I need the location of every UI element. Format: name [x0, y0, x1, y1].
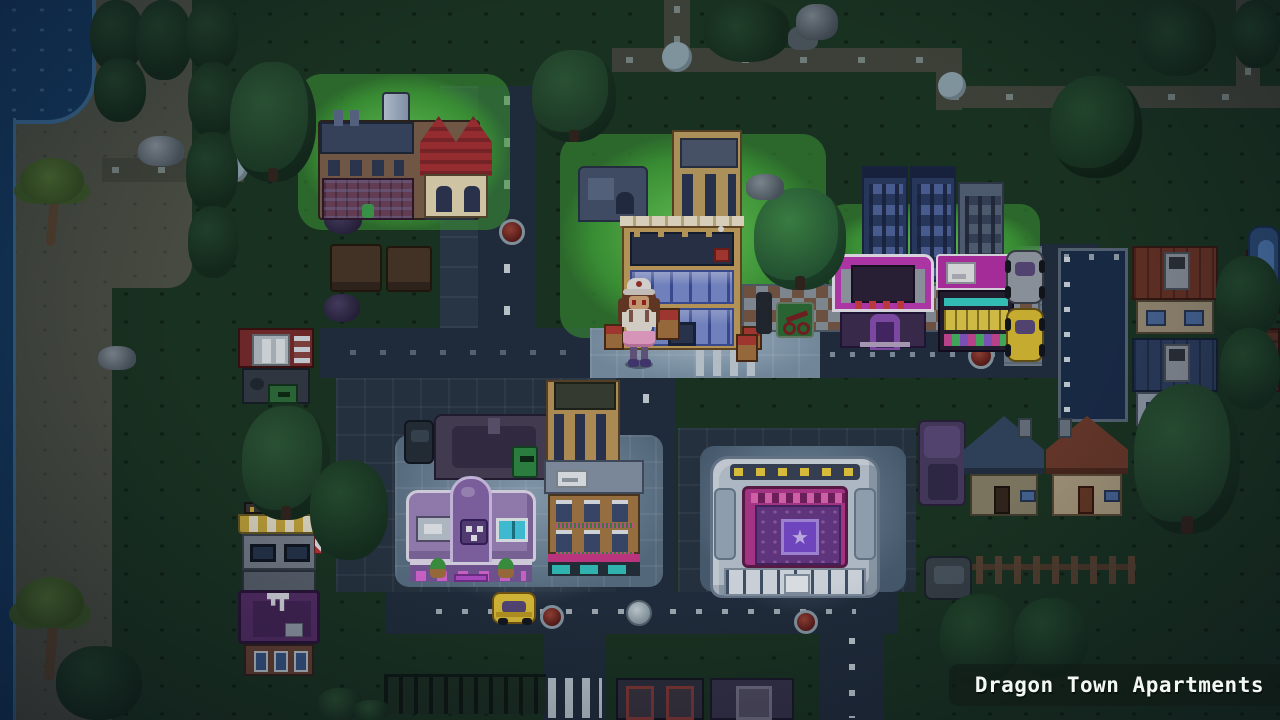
ocean-water	[0, 0, 96, 124]
house-base	[1052, 474, 1122, 516]
dice-pip	[471, 535, 477, 541]
tower-window-columns	[554, 414, 616, 462]
sign-card	[556, 470, 588, 488]
gc-steps	[454, 574, 488, 582]
tree	[1138, 0, 1216, 76]
bike-wheel-icon	[783, 322, 796, 335]
window	[464, 186, 480, 212]
magenta-shop-mart[interactable]	[936, 254, 1016, 352]
hat-badge	[636, 281, 642, 287]
window	[250, 544, 276, 562]
gc-tower	[450, 476, 492, 570]
player-arm	[622, 312, 628, 327]
stadium-wing	[714, 488, 736, 560]
strap	[629, 310, 633, 322]
door	[666, 686, 694, 720]
palm-tree	[16, 578, 86, 682]
window-row	[556, 534, 634, 552]
house-base	[970, 474, 1038, 516]
stadium-lights	[734, 468, 856, 476]
arcade-base	[840, 312, 926, 348]
yellow-shelf	[944, 310, 1008, 330]
wheel	[522, 618, 532, 625]
annex-vent	[488, 418, 500, 434]
roof-card	[285, 623, 303, 637]
gc-cyan-sign	[496, 518, 528, 542]
tile-dots	[1064, 257, 1070, 419]
stadium-wing	[854, 488, 876, 560]
tan-tower-hotel-back[interactable]	[546, 380, 620, 464]
pillar	[915, 269, 925, 303]
cyan-strip	[944, 298, 1008, 306]
window	[1146, 310, 1166, 326]
sign-dash	[562, 478, 578, 482]
wheel	[1039, 260, 1045, 273]
cyan-windows	[552, 565, 636, 574]
house-gabled-blue[interactable]	[964, 416, 1044, 516]
shop-roof	[238, 328, 314, 368]
wheel	[1005, 260, 1011, 273]
tree-trunk	[795, 276, 805, 290]
wheel	[498, 618, 508, 625]
car-dark	[924, 556, 972, 600]
purple-roof	[238, 590, 320, 644]
zigzag-red-roof	[420, 116, 492, 176]
palm-fronds	[16, 578, 84, 628]
gc-window-left	[416, 516, 452, 542]
window	[1020, 490, 1036, 502]
manhole-red	[794, 610, 818, 634]
hotel-shopfront	[548, 562, 640, 576]
wheel	[1039, 344, 1045, 357]
wheel	[1005, 344, 1011, 357]
rock	[746, 174, 784, 200]
bumper-stripe	[496, 612, 532, 617]
pillar	[841, 269, 851, 303]
player-arm	[650, 312, 656, 327]
tree	[1216, 256, 1280, 338]
store-sign-band	[630, 232, 734, 266]
stage-dot-row	[751, 493, 845, 503]
house-gabled-brown[interactable]	[1046, 416, 1128, 516]
car-yellow	[1006, 308, 1044, 362]
tree	[230, 62, 316, 182]
tree-trunk	[1181, 516, 1193, 534]
roof-panel	[252, 334, 290, 366]
road-south-vertical-1	[544, 634, 606, 720]
player-shoe	[628, 359, 639, 367]
red-roof-shop-dark[interactable]	[238, 328, 314, 404]
window	[274, 651, 288, 672]
dumpster-green	[512, 446, 538, 478]
tree	[1220, 328, 1280, 410]
wheel	[1005, 286, 1011, 299]
location-label: Dragon Town Apartments	[949, 664, 1280, 706]
window	[1104, 490, 1120, 502]
arch-door	[616, 192, 634, 214]
red-dot-row	[855, 301, 911, 309]
door	[1078, 486, 1094, 514]
factory-stack-small	[350, 110, 359, 126]
mart-top	[936, 254, 1016, 290]
bottom-building-red-doors	[616, 678, 704, 720]
shine	[461, 487, 475, 497]
hotel-sign-band	[544, 460, 644, 494]
stage-screen: ★	[781, 519, 819, 555]
rock	[98, 346, 136, 370]
kiosk-top	[924, 426, 960, 458]
sign-red-box	[714, 248, 730, 262]
taxi-yellow	[492, 592, 536, 624]
shop-base	[242, 570, 316, 592]
road-dashes	[849, 638, 855, 718]
tree	[1232, 0, 1280, 68]
chimney	[1164, 344, 1190, 382]
tower-roofband	[912, 168, 954, 178]
dice-pip	[466, 526, 472, 532]
chimney-top	[1169, 349, 1185, 361]
stadium-entrance	[784, 574, 810, 594]
goods-row	[944, 334, 1008, 346]
chimney-top	[1169, 257, 1185, 269]
kiosk-front	[928, 464, 958, 500]
manhole-red	[499, 219, 525, 245]
player-eye	[642, 300, 646, 305]
dice-pip	[477, 526, 483, 532]
chimney	[1164, 252, 1190, 290]
dumpster-slot	[520, 456, 534, 462]
hedge-fence	[384, 674, 546, 714]
mart-body	[938, 290, 1014, 352]
stadium-stage: ★	[742, 486, 848, 568]
ocean-water-strip	[0, 118, 16, 720]
wheel	[1039, 318, 1045, 331]
bush-purple	[324, 294, 360, 322]
road-junction-circle	[626, 600, 652, 626]
crosswalk	[548, 678, 602, 718]
door	[626, 686, 654, 720]
tree-trunk	[281, 506, 291, 520]
rock	[138, 136, 184, 166]
dice-panel	[460, 519, 488, 545]
window-row	[556, 504, 634, 522]
car-gray	[1006, 250, 1044, 304]
car-top	[934, 566, 964, 584]
panel	[588, 178, 614, 200]
stadium-base	[724, 568, 866, 596]
potted-palm	[430, 558, 446, 578]
window	[284, 544, 310, 562]
player-shoe	[640, 359, 651, 367]
stage-field: ★	[755, 505, 841, 565]
window	[1184, 310, 1204, 326]
windshield	[1015, 320, 1035, 334]
dumpster-green	[268, 384, 298, 404]
star-icon: ★	[784, 522, 816, 552]
stack	[262, 339, 271, 363]
wheel	[1039, 286, 1045, 299]
gable-roof	[964, 416, 1044, 474]
player-eye	[632, 300, 636, 305]
tree	[754, 188, 846, 290]
hotel-facade	[548, 494, 640, 554]
location-label-text: Dragon Town Apartments	[975, 673, 1264, 697]
purple-kiosk[interactable]	[918, 420, 966, 506]
windshield	[1015, 262, 1035, 276]
street-pole	[756, 292, 772, 334]
palm-tree	[20, 158, 86, 248]
chimney	[1058, 418, 1072, 438]
house-base	[1136, 300, 1214, 334]
tower-roofband	[864, 168, 906, 178]
palm-trunk	[44, 620, 58, 681]
sign-tassels	[634, 231, 730, 237]
steps	[860, 342, 910, 347]
bike-frame-icon	[786, 310, 808, 322]
strap	[645, 310, 649, 322]
tree	[1050, 76, 1142, 178]
shop-body	[242, 368, 310, 404]
tree	[136, 0, 192, 80]
window	[436, 186, 452, 212]
rock	[796, 4, 838, 40]
path-junction-circle	[662, 42, 692, 72]
tile-dots	[1064, 254, 1124, 260]
tower-sign-dark	[554, 382, 616, 410]
stadium-top-band	[730, 464, 860, 480]
factory-brick-wall	[322, 178, 414, 220]
player-face	[629, 296, 649, 309]
dumpster-slot	[278, 392, 290, 397]
path-junction-circle	[938, 72, 966, 100]
tree-trunk	[268, 168, 278, 182]
mart-sign	[946, 262, 976, 284]
dark-screen	[851, 265, 915, 303]
door	[736, 686, 772, 720]
car-dark	[404, 420, 434, 464]
bush	[354, 700, 390, 720]
tree	[310, 460, 388, 560]
round-window	[250, 378, 264, 390]
factory-window-row	[328, 160, 404, 176]
factory-stack-small	[334, 110, 343, 126]
tree	[186, 132, 238, 212]
flower-boxes	[556, 523, 634, 528]
house-wall	[424, 174, 488, 218]
roof-vents	[294, 336, 310, 364]
player-torso	[626, 309, 652, 332]
pink-band	[548, 554, 640, 562]
window	[294, 651, 308, 672]
tree	[94, 58, 146, 122]
windshield	[411, 430, 429, 442]
game-corner-building[interactable]	[406, 476, 536, 582]
tree	[532, 50, 616, 142]
road-south-vertical-2	[820, 634, 884, 720]
tower-sign	[680, 138, 738, 168]
window	[254, 651, 268, 672]
crate-stack	[330, 244, 382, 292]
game-viewport[interactable]: ★ Dragon Town Apartments	[0, 0, 1280, 720]
palm-fronds	[20, 158, 84, 204]
card	[424, 524, 442, 534]
manhole-red	[540, 605, 564, 629]
tree	[188, 206, 238, 278]
wheel	[1005, 318, 1011, 331]
house-brown-roof[interactable]	[1132, 246, 1218, 334]
magenta-shop-arcade[interactable]	[832, 254, 934, 348]
sign-line	[952, 274, 966, 279]
tree-trunk	[569, 130, 579, 142]
bike-sign	[776, 302, 814, 338]
bike-wheel-icon	[797, 322, 810, 335]
player-character[interactable]	[618, 278, 660, 370]
player-hat-brim	[623, 289, 655, 295]
factory-top-block	[320, 122, 414, 154]
purple-roof-house[interactable]	[238, 590, 320, 676]
flower-hotel[interactable]	[544, 460, 644, 576]
shop-body	[242, 534, 316, 570]
stack	[276, 339, 285, 363]
chimney	[1018, 418, 1032, 438]
crate	[736, 334, 758, 362]
sign-lamp	[718, 226, 724, 232]
crate-stack	[386, 246, 432, 292]
door	[994, 486, 1010, 514]
potted-palm	[498, 558, 514, 578]
bottom-building-gray-door	[710, 678, 794, 720]
arcade-roof	[832, 254, 934, 312]
gray-building[interactable]	[578, 166, 648, 222]
tree-large	[1134, 384, 1240, 534]
stadium-building[interactable]: ★	[710, 456, 880, 598]
factory-green-door	[362, 204, 374, 218]
tree	[704, 0, 790, 62]
house-base	[244, 644, 314, 676]
pool-lot	[1058, 248, 1128, 422]
player-skirt	[623, 331, 655, 347]
red-roof-house[interactable]	[420, 116, 492, 218]
